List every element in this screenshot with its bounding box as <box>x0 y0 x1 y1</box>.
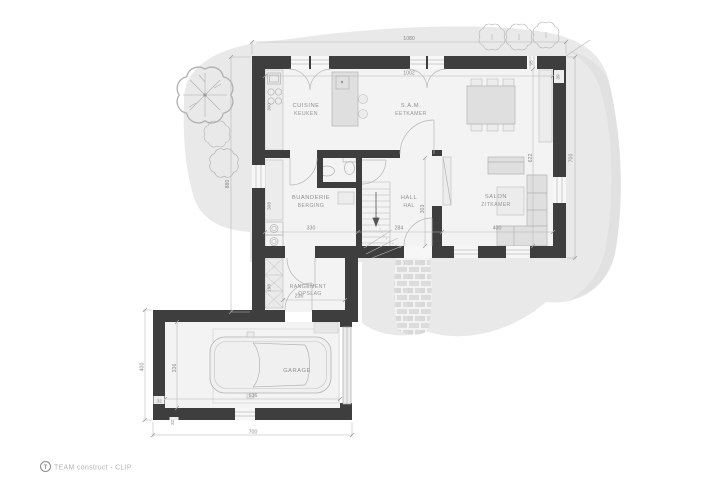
dim-garage-wall-left: 32 <box>156 399 162 405</box>
window-living-right <box>553 175 566 205</box>
coffee-table <box>497 187 524 215</box>
dim-garage-overall-depth: 400 <box>140 363 146 372</box>
stone-walkway <box>394 258 432 335</box>
dim-top-window: 95 <box>529 60 535 66</box>
floor-plan-page: 1080 1002 880 700 39 95 300 308 330 284 … <box>0 0 720 480</box>
dim-hall-depth: 303 <box>420 205 426 214</box>
room-label-cuisine-nl: KEUKEN <box>294 111 318 117</box>
floor-door-strips <box>285 246 315 312</box>
storage-closet <box>265 258 283 308</box>
dim-living-depth: 622 <box>528 154 534 163</box>
dim-depth-right: 700 <box>569 154 575 163</box>
dim-interior-width: 1002 <box>403 71 415 77</box>
room-label-living-fr: SALON <box>485 194 507 200</box>
logo-letter: T <box>44 465 48 471</box>
dim-laundry-width: 330 <box>307 226 316 232</box>
garage-sectional-door <box>343 327 351 404</box>
floor-plan-canvas: 1080 1002 880 700 39 95 300 308 330 284 … <box>0 0 720 480</box>
dim-garage-inner-depth: 336 <box>172 364 178 373</box>
footer-logo: T TEAM construct - CLIP <box>41 462 132 472</box>
room-label-storage-nl: OPSLAG <box>298 291 322 297</box>
room-label-hall-nl: HAL <box>403 203 414 209</box>
room-label-dining-fr: S.À.M. <box>401 102 421 109</box>
window-living-bottom-1 <box>452 246 480 258</box>
dim-living-width: 400 <box>493 226 502 232</box>
dim-hall-width: 284 <box>395 226 404 232</box>
room-label-garage: GARAGE <box>283 368 311 374</box>
room-label-living-nl: ZITKAMER <box>481 202 510 208</box>
loveseat <box>488 157 524 174</box>
laundry-cabinet <box>338 192 354 204</box>
dim-garage-wall-bottom: 32 <box>170 420 176 426</box>
dim-garage-overall-width: 700 <box>249 430 258 436</box>
room-label-hall-fr: HALL <box>401 195 418 201</box>
dim-garage-inner-width: 636 <box>249 393 258 399</box>
room-label-laundry-nl: BERGING <box>298 203 325 209</box>
dim-laundry-counter: 308 <box>267 202 273 210</box>
brand-text: TEAM construct - CLIP <box>54 465 132 472</box>
room-label-dining-nl: EETKAMER <box>395 111 427 117</box>
room-label-laundry-fr: BUANDERIE <box>292 195 330 201</box>
dining-cabinet <box>539 70 552 142</box>
window-garage-bottom <box>233 408 257 420</box>
garage-step <box>314 322 338 333</box>
dim-storage-depth: 198 <box>267 284 273 292</box>
room-label-cuisine-fr: CUISINE <box>292 103 319 109</box>
dining-table <box>467 79 515 131</box>
car <box>210 332 331 398</box>
dim-depth-left: 880 <box>225 180 231 189</box>
dim-overall-width: 1080 <box>403 36 415 42</box>
dim-wall-thickness: 39 <box>556 74 562 80</box>
window-living-bottom-2 <box>504 246 532 258</box>
sliding-door-panel <box>443 157 451 205</box>
room-label-storage-fr: RANGEMENT <box>290 284 327 290</box>
dim-kitchen-counter: 300 <box>267 103 273 111</box>
window-kitchen-left <box>252 163 265 190</box>
